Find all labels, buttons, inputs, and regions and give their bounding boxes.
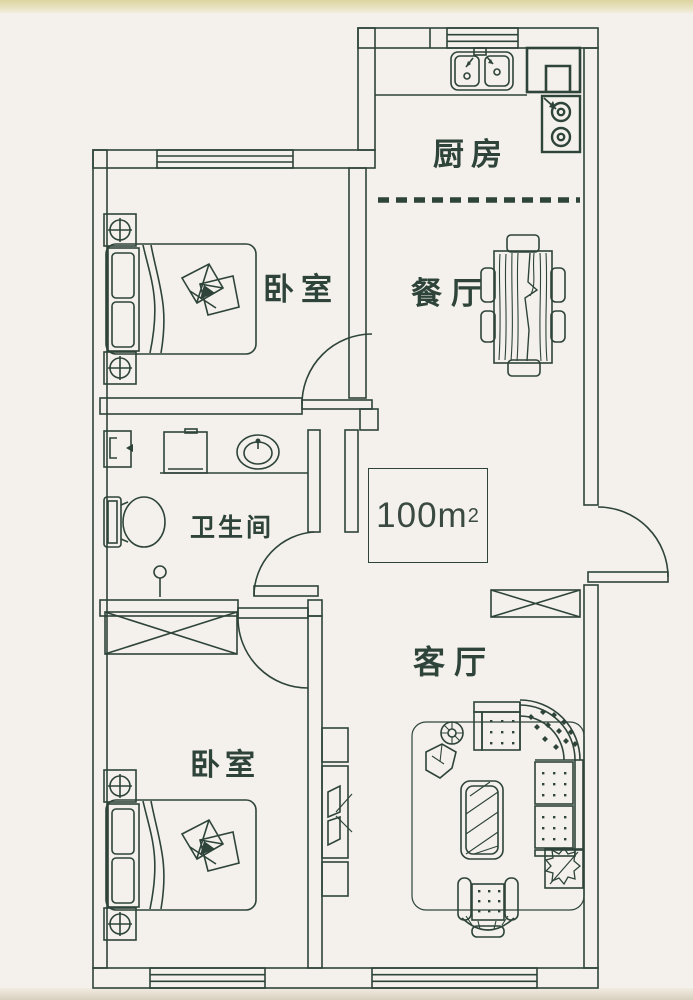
- floor-drain-icon: [154, 566, 166, 597]
- entrance-door: [588, 507, 668, 582]
- wardrobe-icon: [105, 612, 237, 654]
- toilet-icon: [104, 497, 165, 547]
- bedroom-top-label: 卧室: [263, 274, 339, 305]
- washing-machine-icon: [164, 429, 207, 473]
- tv-cabinet-icon: [322, 728, 352, 896]
- round-ornament-icon: [441, 722, 463, 744]
- living-room-label: 客厅: [413, 646, 495, 678]
- bathroom-label: 卫生间: [190, 516, 274, 541]
- bedroom-bottom-label: 卧室: [190, 751, 260, 781]
- floor-plan-drawing: [0, 0, 693, 1000]
- bed-icon: [104, 214, 256, 384]
- dining-room-label: 餐厅: [411, 278, 491, 309]
- stove-icon: [542, 96, 580, 152]
- mop-basin-icon: [104, 431, 133, 467]
- shoe-cabinet-icon: [491, 590, 580, 617]
- cushion-icon: [426, 744, 456, 778]
- window: [372, 968, 537, 988]
- fridge-icon: [527, 48, 580, 92]
- plant-icon: [545, 848, 583, 888]
- corner-sofa-icon: [474, 700, 583, 856]
- sofa-corner-pattern: [528, 709, 578, 750]
- bed-icon: [104, 770, 256, 940]
- floor-plan-page: 厨房 餐厅 卧室 卫生间 客厅 卧室 100m2: [0, 0, 693, 1000]
- window: [430, 28, 518, 48]
- window: [157, 150, 293, 168]
- bathroom-sink-icon: [237, 435, 279, 469]
- sofa-dots: [490, 720, 566, 840]
- kitchen-label: 厨房: [433, 139, 509, 170]
- coffee-table-icon: [461, 781, 503, 859]
- area-value: 100m: [376, 496, 468, 536]
- armchair-icon: [458, 878, 518, 937]
- total-area-badge: 100m2: [368, 468, 488, 563]
- dining-table-icon: [481, 235, 565, 376]
- bedroom-bottom-door: [238, 608, 308, 688]
- window: [150, 968, 265, 988]
- kitchen-sink-icon: [451, 48, 513, 90]
